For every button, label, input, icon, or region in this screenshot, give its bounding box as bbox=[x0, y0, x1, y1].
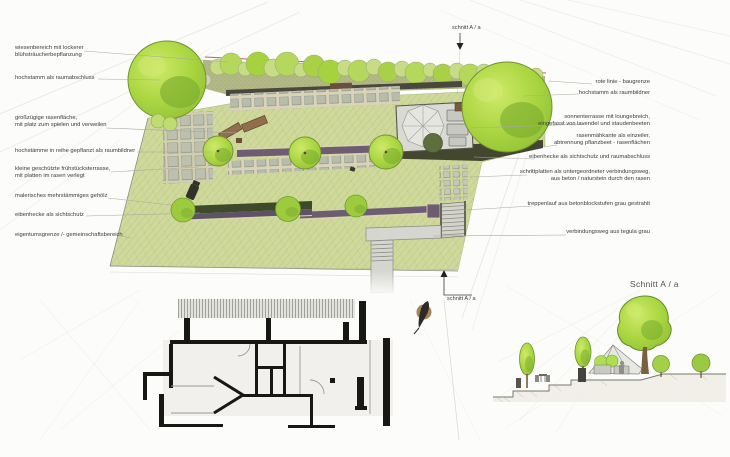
garden-plan-sheet: wiesenbereich mit lockerer blühsträucher… bbox=[0, 0, 730, 457]
label-tall-tree-space: hochstamm als raumbildner bbox=[475, 90, 650, 97]
section-view-title: Schnitt A / a bbox=[630, 279, 679, 289]
label-red-building-line: rote linie - baugrenze bbox=[475, 79, 650, 86]
label-breakfast-terrace: kleine geschützte frühstücksterrasse, mi… bbox=[15, 166, 150, 180]
label-stepping-stones: schrittplatten als untergeordneter verbi… bbox=[475, 169, 650, 183]
stepping-stones bbox=[439, 164, 468, 201]
section-arrow-bottom bbox=[441, 270, 473, 295]
label-connection-path: verbindungsweg aus tegula grau bbox=[475, 229, 650, 236]
label-stairs: treppenlauf aus betonblockstufen grau ge… bbox=[475, 201, 650, 208]
section-view bbox=[493, 296, 726, 402]
label-yew-hedge-left: eibenhecke als sichtschutz bbox=[15, 212, 150, 219]
section-tree-1 bbox=[520, 343, 535, 388]
label-tree-row: hochstämme in reihe gepflanzt als raumbi… bbox=[15, 148, 150, 155]
section-table-set bbox=[535, 374, 550, 382]
building-floor-plan bbox=[143, 299, 393, 428]
bird-icon bbox=[414, 301, 432, 334]
section-arrow-top bbox=[457, 33, 464, 50]
label-meadow-shrubs: wiesenbereich mit lockerer blühsträucher… bbox=[15, 45, 150, 59]
section-marker-bottom: schnitt A / a bbox=[447, 296, 476, 302]
section-marker-top: schnitt A / a bbox=[452, 25, 481, 31]
sun-terrace bbox=[396, 102, 473, 153]
label-mowing-edge: rasenmähkante als einzeiler, abtrennung … bbox=[475, 133, 650, 147]
label-yew-hedge-right: eibenhecke als sichtschutz und raumabsch… bbox=[475, 154, 650, 161]
label-tall-tree-enclosure: hochstamm als raumabschluss bbox=[15, 75, 150, 82]
label-sun-terrace: sonnenterrasse mit loungebreich, eingefa… bbox=[475, 114, 650, 128]
section-pergola bbox=[589, 345, 642, 374]
label-multi-stem-grove: malerisches mehrstämmiges gehölz bbox=[15, 193, 150, 200]
dark-shrub bbox=[424, 134, 443, 153]
stairs bbox=[440, 201, 466, 238]
label-property-boundary: eigentumsgrenze /- gemeinschaftsbereich bbox=[15, 232, 150, 239]
label-lawn: großzügige rasenfläche, mit platz zum sp… bbox=[15, 115, 150, 129]
